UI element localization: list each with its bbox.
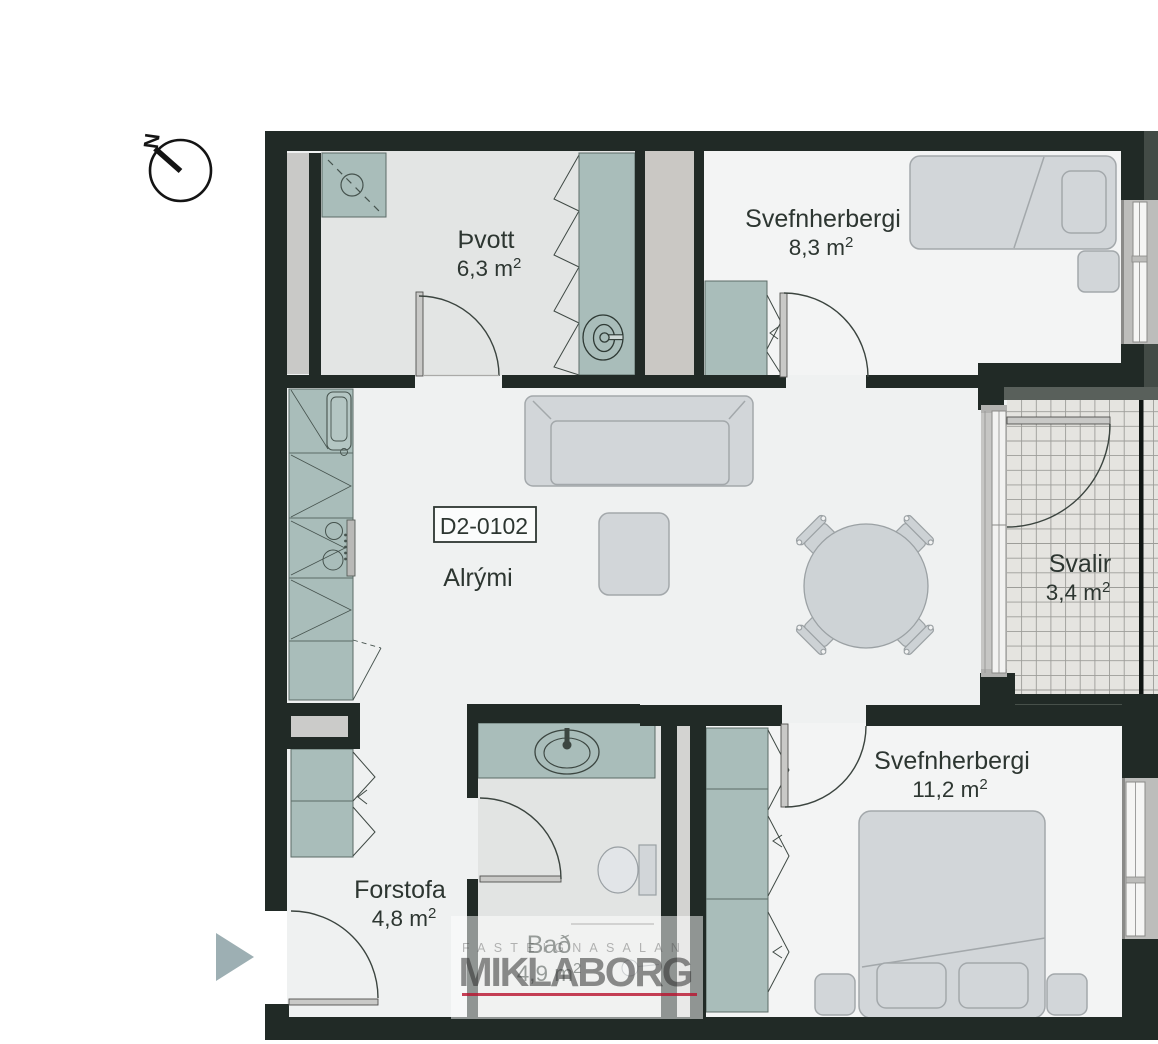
svg-text:8,3 m2: 8,3 m2 — [789, 234, 854, 260]
svg-text:Alrými: Alrými — [443, 564, 512, 592]
svg-text:Forstofa: Forstofa — [354, 876, 446, 904]
svg-text:D2-0102: D2-0102 — [440, 513, 528, 539]
svg-text:6,3 m2: 6,3 m2 — [457, 255, 522, 281]
svg-text:Svefnherbergi: Svefnherbergi — [874, 747, 1030, 775]
svg-text:Svalir: Svalir — [1049, 550, 1112, 578]
svg-text:Þvott: Þvott — [458, 226, 515, 254]
svg-text:4,8 m2: 4,8 m2 — [372, 905, 437, 931]
svg-text:N: N — [138, 132, 163, 150]
svg-text:3,4 m2: 3,4 m2 — [1046, 579, 1111, 605]
svg-text:Svefnherbergi: Svefnherbergi — [745, 205, 901, 233]
svg-text:MIKLABORG: MIKLABORG — [458, 949, 691, 995]
svg-text:11,2 m2: 11,2 m2 — [912, 776, 987, 802]
